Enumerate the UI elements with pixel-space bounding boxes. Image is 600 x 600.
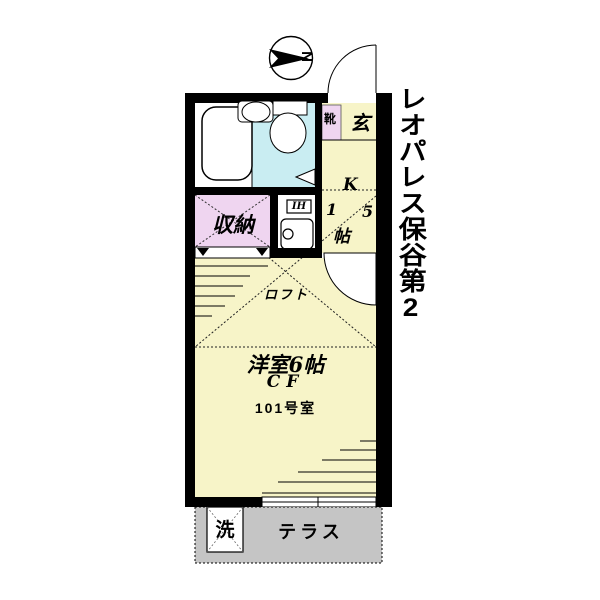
wall-right xyxy=(376,93,392,507)
floor-type-label: CF xyxy=(195,372,376,392)
ih-cooktop-label: IH xyxy=(287,200,311,213)
unit-number-label: 101号室 xyxy=(195,398,376,418)
window xyxy=(262,497,376,507)
terrace-label: テラス xyxy=(240,518,382,544)
loft-label: ロフト xyxy=(264,284,309,303)
floor-plan-page: レオパレス保谷第2 N 玄 靴 K 1 5 帖 IH 収納 ロフト 洋室6帖 C… xyxy=(0,0,600,600)
wall-bottom xyxy=(185,497,262,507)
building-title: レオパレス保谷第2 xyxy=(396,86,424,323)
kitchen-label-char: 5 xyxy=(362,202,373,221)
wall-left xyxy=(185,93,195,507)
kitchen-label-char: 帖 xyxy=(333,222,350,247)
entrance-label: 玄 xyxy=(350,107,370,136)
kitchen-label-char: K xyxy=(343,175,358,195)
kitchen-label-char: 1 xyxy=(326,200,337,219)
faucet-icon xyxy=(283,229,293,239)
wall-kitchen-bottom xyxy=(270,248,322,258)
laundry-label: 洗 xyxy=(207,515,243,542)
closet-label: 収納 xyxy=(195,209,271,239)
wall-bath-entry-divider xyxy=(315,93,322,248)
wall-bath-bottom xyxy=(185,187,322,195)
compass-north-label: N xyxy=(298,51,315,62)
entrance-door-swing xyxy=(328,45,376,93)
toilet-bowl xyxy=(270,113,306,153)
washbasin xyxy=(242,102,270,122)
shoe-cabinet-label: 靴 xyxy=(324,110,336,127)
entrance-doorway-gap xyxy=(328,93,376,103)
